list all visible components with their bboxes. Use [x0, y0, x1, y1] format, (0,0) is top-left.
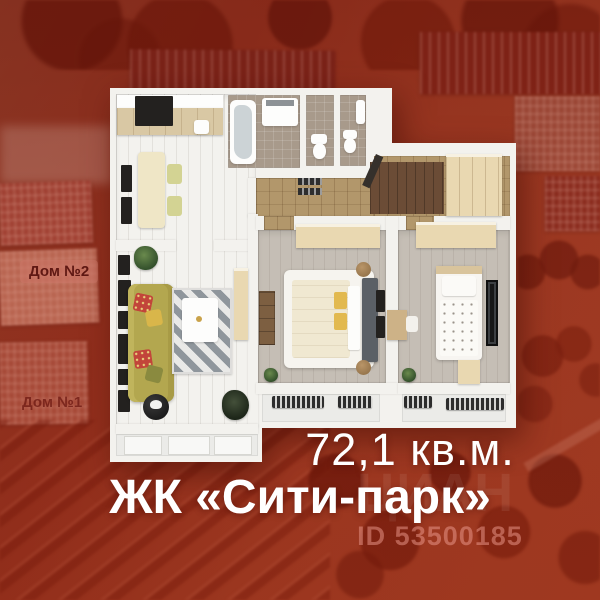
bedside-stool — [356, 360, 371, 375]
nightstand — [458, 360, 480, 384]
dining-chair — [167, 196, 182, 216]
single-headboard — [436, 266, 482, 274]
radiator — [446, 398, 504, 410]
desk-chair — [406, 316, 418, 332]
wall-between-bedrooms — [386, 216, 398, 390]
pillow-yellow — [334, 313, 347, 330]
vanity-mirror — [266, 100, 294, 106]
kitchen-hood-stove — [135, 96, 173, 126]
toilet-bowl-2 — [344, 138, 356, 153]
plant — [264, 368, 278, 382]
plant — [222, 390, 249, 420]
loggia-panel — [214, 436, 252, 455]
floor-plan — [110, 88, 516, 462]
loggia-panel — [124, 436, 162, 455]
entry-wardrobe — [446, 154, 502, 216]
dining-table — [138, 152, 165, 228]
table-decor — [196, 316, 202, 322]
house-2-label: Дом №2 — [20, 260, 98, 283]
wall-frame — [376, 290, 385, 312]
tv-cabinet — [234, 268, 248, 340]
pillow-yellow — [334, 292, 347, 309]
dresser — [259, 291, 275, 345]
dining-chair — [167, 164, 182, 184]
radiator — [272, 396, 324, 408]
wall-frame — [121, 197, 132, 224]
window-wall-living — [116, 424, 258, 434]
wall-frame — [121, 165, 132, 192]
entry-dark-mat — [370, 162, 444, 214]
plant — [134, 246, 158, 270]
window-wall-main — [256, 383, 398, 394]
sofa-pillow — [145, 309, 164, 328]
house-1-label: Дом №1 — [16, 392, 88, 413]
window-wall-second — [398, 383, 510, 394]
toilet-bowl-1 — [313, 143, 326, 159]
loggia-panel — [168, 436, 210, 455]
complex-name: ЖК «Сити-парк» — [40, 470, 560, 525]
door-opening-main-bedroom — [264, 216, 294, 230]
hall-mat — [298, 178, 322, 185]
pillow — [442, 276, 476, 296]
wall-frame — [118, 255, 130, 275]
radiator — [404, 396, 432, 408]
wardrobe-second — [416, 222, 496, 248]
listing-image: Дом №2 Дом №1 — [0, 0, 600, 600]
wc-cabinet — [356, 100, 365, 124]
listing-id: ID 53500185 — [330, 521, 550, 552]
desk — [387, 310, 407, 340]
kitchen-sink — [194, 120, 209, 134]
cat — [150, 400, 162, 409]
wall-threshold — [248, 178, 256, 218]
plant — [402, 368, 416, 382]
area-text: 72,1 кв.м. — [260, 424, 560, 476]
wall-living-bedroom — [248, 214, 258, 428]
floor-plan-shell — [110, 88, 516, 462]
radiator — [338, 396, 372, 408]
mirror — [486, 280, 498, 346]
bathtub-basin — [234, 105, 252, 159]
dotted-duvet — [440, 300, 478, 356]
hall-mat — [298, 188, 322, 195]
bedside-stool — [356, 262, 371, 277]
wall-frame — [376, 316, 385, 338]
pillows-white — [348, 286, 360, 350]
wardrobe-main — [296, 224, 380, 248]
